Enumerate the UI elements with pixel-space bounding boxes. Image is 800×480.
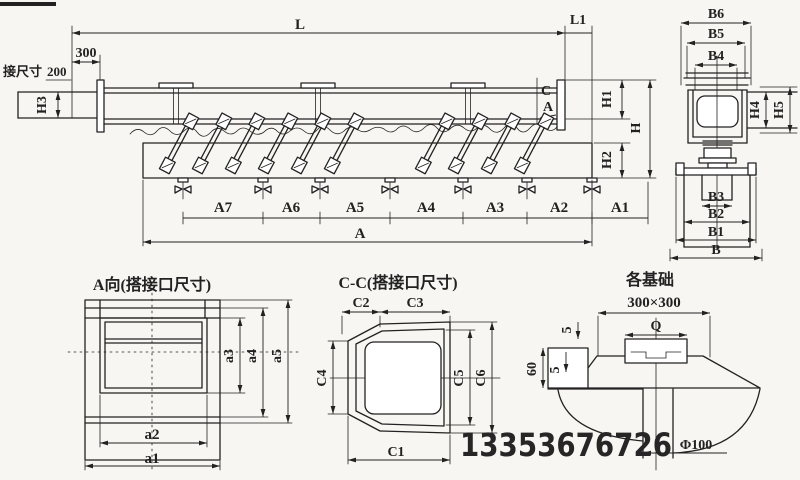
dim-label-B6: B6 xyxy=(708,7,724,22)
feed-inlet: H3 xyxy=(18,92,97,118)
dim-label-A1: A1 xyxy=(611,200,629,216)
anchor-plate: Q xyxy=(625,319,687,363)
dim-label-a5: a5 xyxy=(270,349,285,363)
foundation-title: 各基础 xyxy=(625,270,674,289)
dim-label-A: A xyxy=(355,226,366,242)
dim-label-a4: a4 xyxy=(245,349,260,363)
connection-size-label: 接尺寸 xyxy=(3,64,42,79)
dim-label-L: L xyxy=(295,17,305,33)
main-elevation-view: L L1 300 接尺寸 200 H3 C xyxy=(3,13,656,246)
dim-label-H4: H4 xyxy=(748,101,763,119)
dim-label-B5: B5 xyxy=(708,27,724,42)
dim-label-B2: B2 xyxy=(708,207,724,222)
anchor-foot xyxy=(455,178,471,199)
dim-label-A6: A6 xyxy=(282,200,301,216)
dim-label-H5: H5 xyxy=(772,101,787,119)
cc-view-title: C-C(搭接口尺寸) xyxy=(338,273,457,292)
lap-joint-protrusion: H4 H5 xyxy=(747,87,797,133)
watermark-phone-number: 13353676726 xyxy=(460,426,672,464)
dim-label-B3: B3 xyxy=(708,190,724,205)
dim-label-5-top: 5 xyxy=(560,327,575,334)
dim-label-A7: A7 xyxy=(214,200,233,216)
dim-label-a3: a3 xyxy=(222,349,237,363)
dim-label-B1: B1 xyxy=(708,225,724,240)
dim-label-5-bottom: 5 xyxy=(548,367,563,374)
dim-label-Q: Q xyxy=(651,319,662,334)
a-view-title: A向(搭接口尺寸) xyxy=(93,275,211,294)
dim-label-300x300: 300×300 xyxy=(627,295,681,311)
support-pedestal xyxy=(676,141,756,175)
dim-label-300: 300 xyxy=(76,46,97,61)
cc-opening xyxy=(365,342,441,414)
dim-label-C1: C1 xyxy=(387,445,404,460)
anchor-foot xyxy=(255,178,271,199)
technical-drawing-canvas: L L1 300 接尺寸 200 H3 C xyxy=(0,0,800,480)
trough-opening xyxy=(697,96,738,127)
section-mark-C: C xyxy=(541,84,551,99)
dim-label-A5: A5 xyxy=(346,200,364,216)
connection-size-value: 200 xyxy=(47,64,67,79)
dim-label-a2: a2 xyxy=(145,427,160,443)
side-end-view: B6 B5 B4 xyxy=(670,7,797,261)
dim-label-a1: a1 xyxy=(145,451,160,467)
conveyor-trough: C A xyxy=(97,78,565,132)
dim-label-C5: C5 xyxy=(452,369,467,386)
dim-label-C2: C2 xyxy=(352,296,369,311)
dim-label-H3: H3 xyxy=(35,96,50,114)
dim-label-A4: A4 xyxy=(417,200,436,216)
dim-label-H: H xyxy=(629,122,644,133)
anchor-foot xyxy=(382,178,398,199)
dim-label-phi100: Φ100 xyxy=(680,438,713,453)
anchor-foot xyxy=(519,178,535,199)
a-view-detail: A向(搭接口尺寸) a3 a4 a5 a2 a1 xyxy=(68,275,298,472)
dim-label-H1: H1 xyxy=(600,90,615,108)
dim-label-C3: C3 xyxy=(406,296,423,311)
dim-label-A2: A2 xyxy=(550,200,568,216)
dim-label-B4: B4 xyxy=(708,49,724,64)
dim-label-B: B xyxy=(711,243,720,258)
dim-label-C6: C6 xyxy=(474,369,489,386)
dim-label-L1: L1 xyxy=(570,13,586,28)
dim-label-60: 60 xyxy=(525,362,540,376)
dim-label-H2: H2 xyxy=(600,151,615,169)
dim-label-A3: A3 xyxy=(486,200,504,216)
anchor-foot xyxy=(312,178,328,199)
dim-label-C4: C4 xyxy=(315,369,330,386)
anchor-foot xyxy=(175,178,191,199)
height-dimensions: H1 H2 H xyxy=(566,80,656,178)
